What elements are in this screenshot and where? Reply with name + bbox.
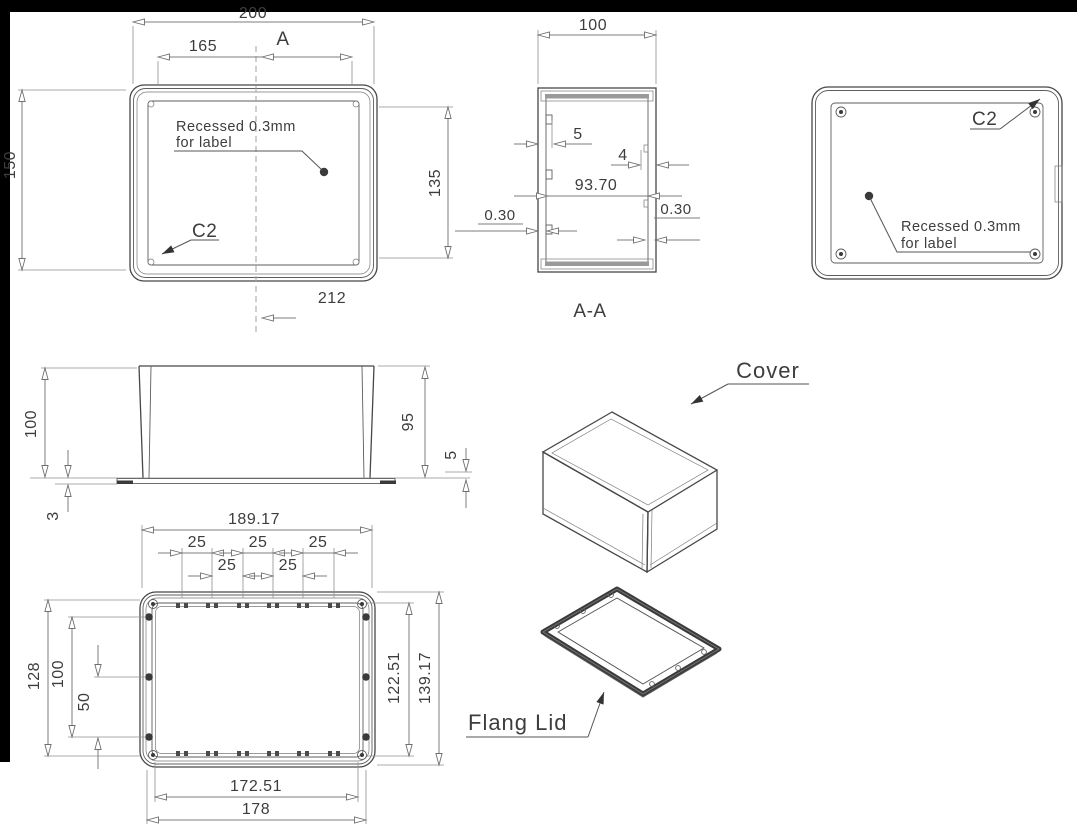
dim-95-label: 95 [400,413,417,432]
dim-189-17-label: 189.17 [228,511,280,528]
top-border [0,0,1077,12]
top-view: 200 165 A 212 150 135 Recessed 0.3mm for… [2,5,453,332]
cover-label: Cover [736,358,800,383]
dim-5-section-label: 5 [573,126,582,143]
pitch-25-label-2: 25 [249,534,268,551]
cover-leader [691,384,728,404]
flang-lid-label: Flang Lid [468,710,568,735]
bottom-view: 189.17 25 25 25 25 25 128 1 [26,511,444,824]
iso-cover: Cover [543,358,809,572]
mounting-holes [145,613,370,741]
chamfer-c2-label: C2 [192,221,217,242]
dim-4-label: 4 [618,147,627,164]
iso-flang-lid: Flang Lid [466,589,719,737]
section-title: A-A [573,301,606,322]
lid-slots [176,603,340,756]
dim-172-51-label: 172.51 [230,778,282,795]
left-border [0,12,10,762]
note-leader [174,151,322,170]
dim-178-label: 178 [242,801,270,818]
technical-drawing: 200 165 A 212 150 135 Recessed 0.3mm for… [0,0,1077,825]
dim-50-label: 50 [76,693,93,712]
dim-5-side-label: 5 [443,450,460,459]
dim-150-label: 150 [2,151,19,179]
flang-lid-leader [588,692,604,737]
dim-100-bottom-label: 100 [50,660,67,688]
back-view: C2 Recessed 0.3mm for label [812,87,1062,279]
pitch-25-label-5: 25 [279,557,298,574]
back-recess-dot [865,192,873,200]
dim-030-right-label: 0.30 [660,201,691,218]
back-chamfer-leader [1000,99,1040,129]
corner-screws [149,600,367,760]
section-label: A [276,29,289,50]
dim-93-70-label: 93.70 [575,177,618,194]
chamfer-leader [162,240,191,254]
dim-139-17-label: 139.17 [417,652,434,704]
section-view: 100 5 4 93.70 0.30 0.30 A-A [455,17,700,322]
top-note-line2: for label [176,135,232,151]
label-recess-dot [320,168,328,176]
drawing-sheet: 200 165 A 212 150 135 Recessed 0.3mm for… [0,0,1077,825]
dim-100-side-label: 100 [23,410,40,438]
top-note-line1: Recessed 0.3mm [176,119,296,135]
dim-200-label: 200 [239,5,267,22]
back-chamfer-c2-label: C2 [972,109,997,130]
side-view: 100 3 95 5 [23,366,472,521]
dim-212-label: 212 [318,290,346,307]
back-note-line2: for label [901,236,957,252]
dim-165-label: 165 [189,38,217,55]
dim-3-label: 3 [45,511,62,520]
dim-135-label: 135 [427,169,444,197]
pitch-25-label-4: 25 [218,557,237,574]
pitch-25-label-3: 25 [309,534,328,551]
pitch-25-label-1: 25 [188,534,207,551]
dim-030-left-label: 0.30 [484,207,515,224]
dim-100-section-label: 100 [579,17,607,34]
back-note-line1: Recessed 0.3mm [901,219,1021,235]
dim-122-51-label: 122.51 [386,652,403,704]
dim-128-label: 128 [26,662,43,690]
